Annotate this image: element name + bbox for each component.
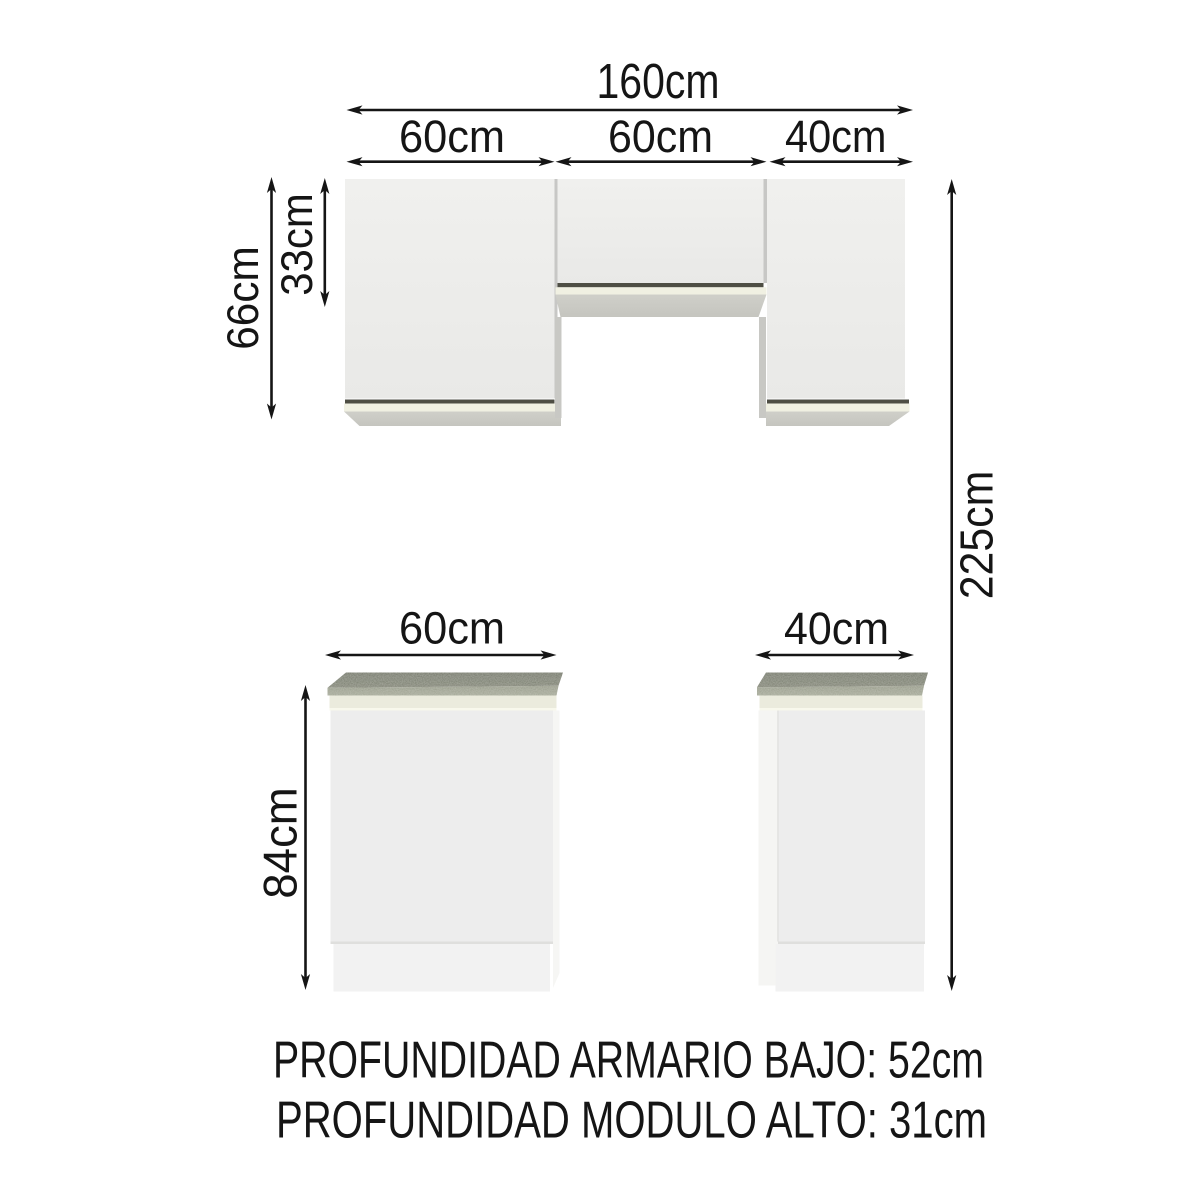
svg-text:40cm: 40cm	[784, 603, 889, 654]
svg-text:84cm: 84cm	[253, 787, 306, 899]
svg-text:225cm: 225cm	[950, 471, 1002, 600]
svg-text:PROFUNDIDAD ARMARIO BAJO: 52cm: PROFUNDIDAD ARMARIO BAJO: 52cm	[273, 1032, 984, 1090]
svg-text:33cm: 33cm	[273, 193, 322, 296]
svg-text:40cm: 40cm	[785, 111, 887, 162]
svg-text:160cm: 160cm	[597, 55, 720, 109]
svg-text:60cm: 60cm	[399, 603, 505, 654]
svg-text:60cm: 60cm	[608, 111, 713, 162]
svg-text:60cm: 60cm	[399, 111, 505, 162]
svg-text:PROFUNDIDAD MODULO ALTO: 31cm: PROFUNDIDAD MODULO ALTO: 31cm	[276, 1092, 987, 1150]
svg-text:66cm: 66cm	[219, 246, 268, 349]
